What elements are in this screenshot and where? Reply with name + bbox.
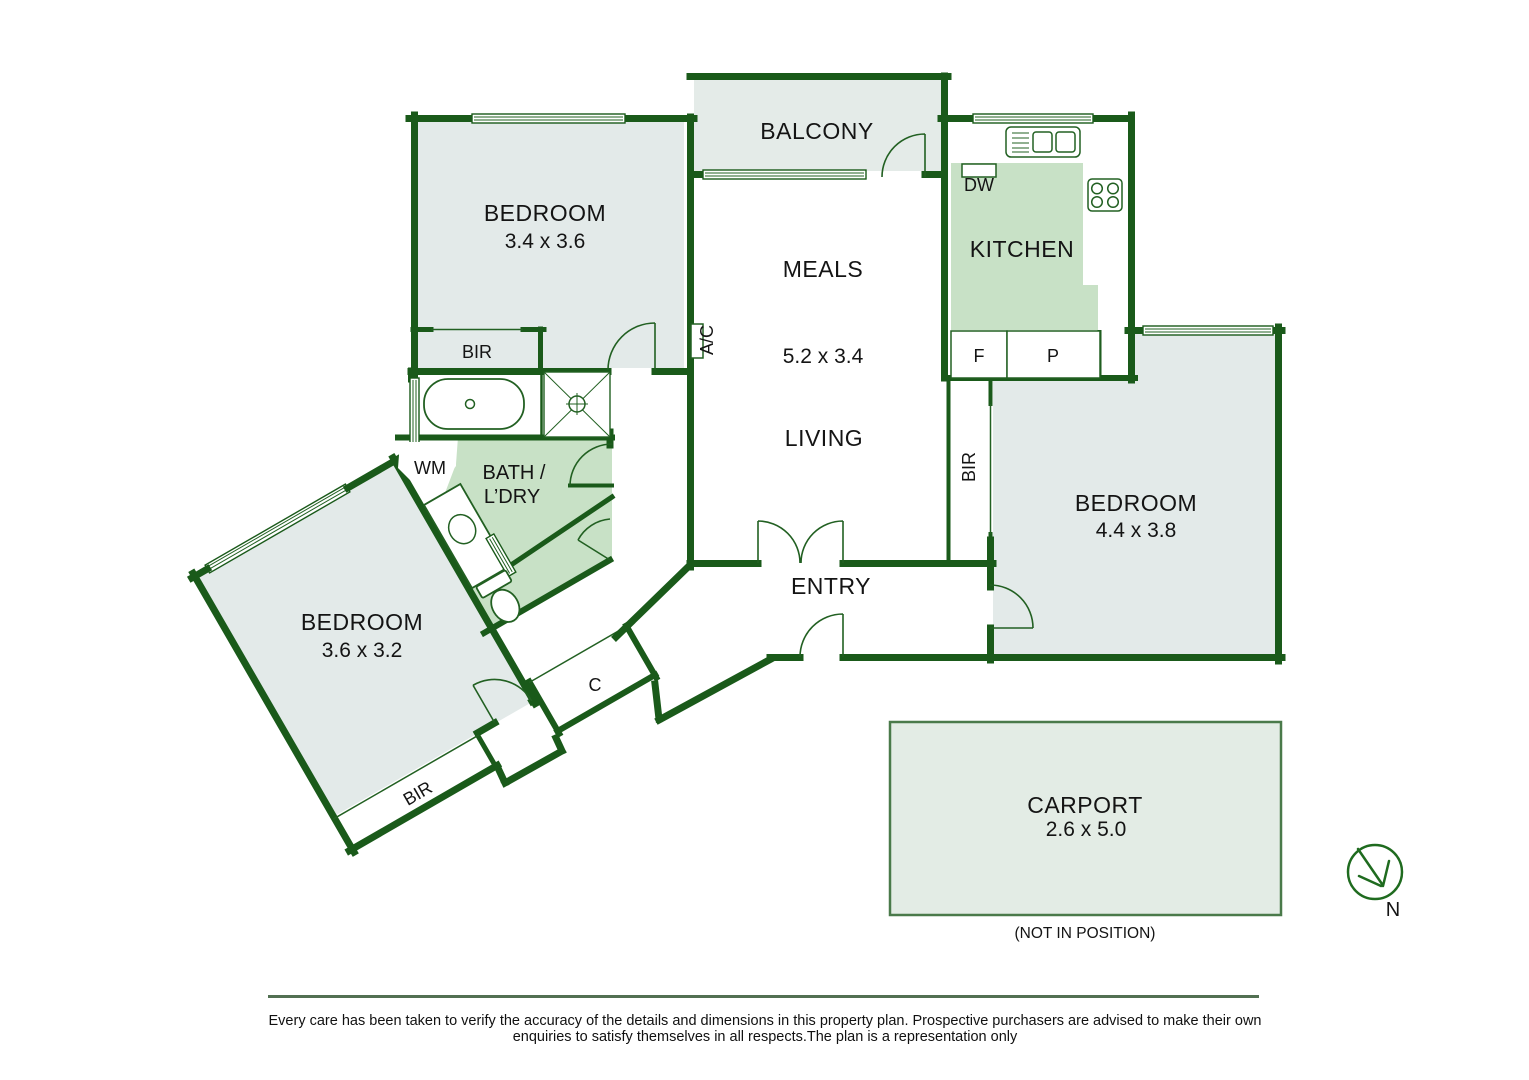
entry-label: ENTRY bbox=[791, 573, 871, 599]
bathtub bbox=[424, 379, 524, 429]
ac-label: A/C bbox=[697, 325, 717, 355]
carport-note: (NOT IN POSITION) bbox=[1015, 925, 1156, 942]
shower bbox=[544, 372, 610, 437]
bedroom3-label: BEDROOM bbox=[301, 609, 423, 635]
bathroom-window bbox=[410, 378, 419, 452]
meals-dims: 5.2 x 3.4 bbox=[783, 345, 864, 368]
floorplan-page: BIR bbox=[0, 0, 1529, 1080]
meals-label: MEALS bbox=[783, 256, 863, 282]
wm-label: WM bbox=[414, 458, 446, 478]
north-label: N bbox=[1386, 899, 1400, 921]
bedroom1-window bbox=[472, 114, 625, 123]
bedroom2-label: BEDROOM bbox=[1075, 490, 1197, 516]
floorplan-drawing: BIR bbox=[0, 0, 1529, 1080]
bath-label-line1: BATH / bbox=[483, 462, 546, 484]
carport-label: CARPORT bbox=[1027, 792, 1143, 818]
living-double-door bbox=[758, 521, 843, 563]
closet-label: C bbox=[589, 675, 602, 695]
disclaimer-line1: Every care has been taken to verify the … bbox=[250, 1014, 1280, 1030]
front-door bbox=[800, 614, 843, 657]
bedroom3-dims: 3.6 x 3.2 bbox=[322, 639, 403, 662]
bedroom1-label: BEDROOM bbox=[484, 200, 606, 226]
bedroom2-dims: 4.4 x 3.8 bbox=[1096, 519, 1177, 542]
carport-dims: 2.6 x 5.0 bbox=[1046, 818, 1127, 841]
north-compass-icon: N bbox=[1348, 845, 1402, 921]
disclaimer: Every care has been taken to verify the … bbox=[250, 1014, 1280, 1045]
bedroom2-bir-label: BIR bbox=[959, 452, 979, 482]
fridge-label: F bbox=[974, 346, 985, 366]
footer-rule bbox=[268, 995, 1259, 998]
dishwasher-label: DW bbox=[964, 175, 994, 195]
kitchen-sink bbox=[1006, 127, 1080, 157]
balcony-label: BALCONY bbox=[760, 118, 873, 144]
pantry-label: P bbox=[1047, 346, 1059, 366]
balcony-window bbox=[703, 170, 866, 179]
living-label: LIVING bbox=[785, 425, 863, 451]
bedroom2-window bbox=[1143, 326, 1273, 335]
bedroom1-bir-label: BIR bbox=[462, 342, 492, 362]
disclaimer-line2: enquiries to satisfy themselves in all r… bbox=[250, 1030, 1280, 1046]
bath-label-line2: L’DRY bbox=[484, 486, 540, 508]
kitchen-window bbox=[973, 114, 1093, 123]
cooktop bbox=[1088, 179, 1122, 211]
bedroom1-dims: 3.4 x 3.6 bbox=[505, 230, 586, 253]
kitchen-label: KITCHEN bbox=[970, 236, 1074, 262]
